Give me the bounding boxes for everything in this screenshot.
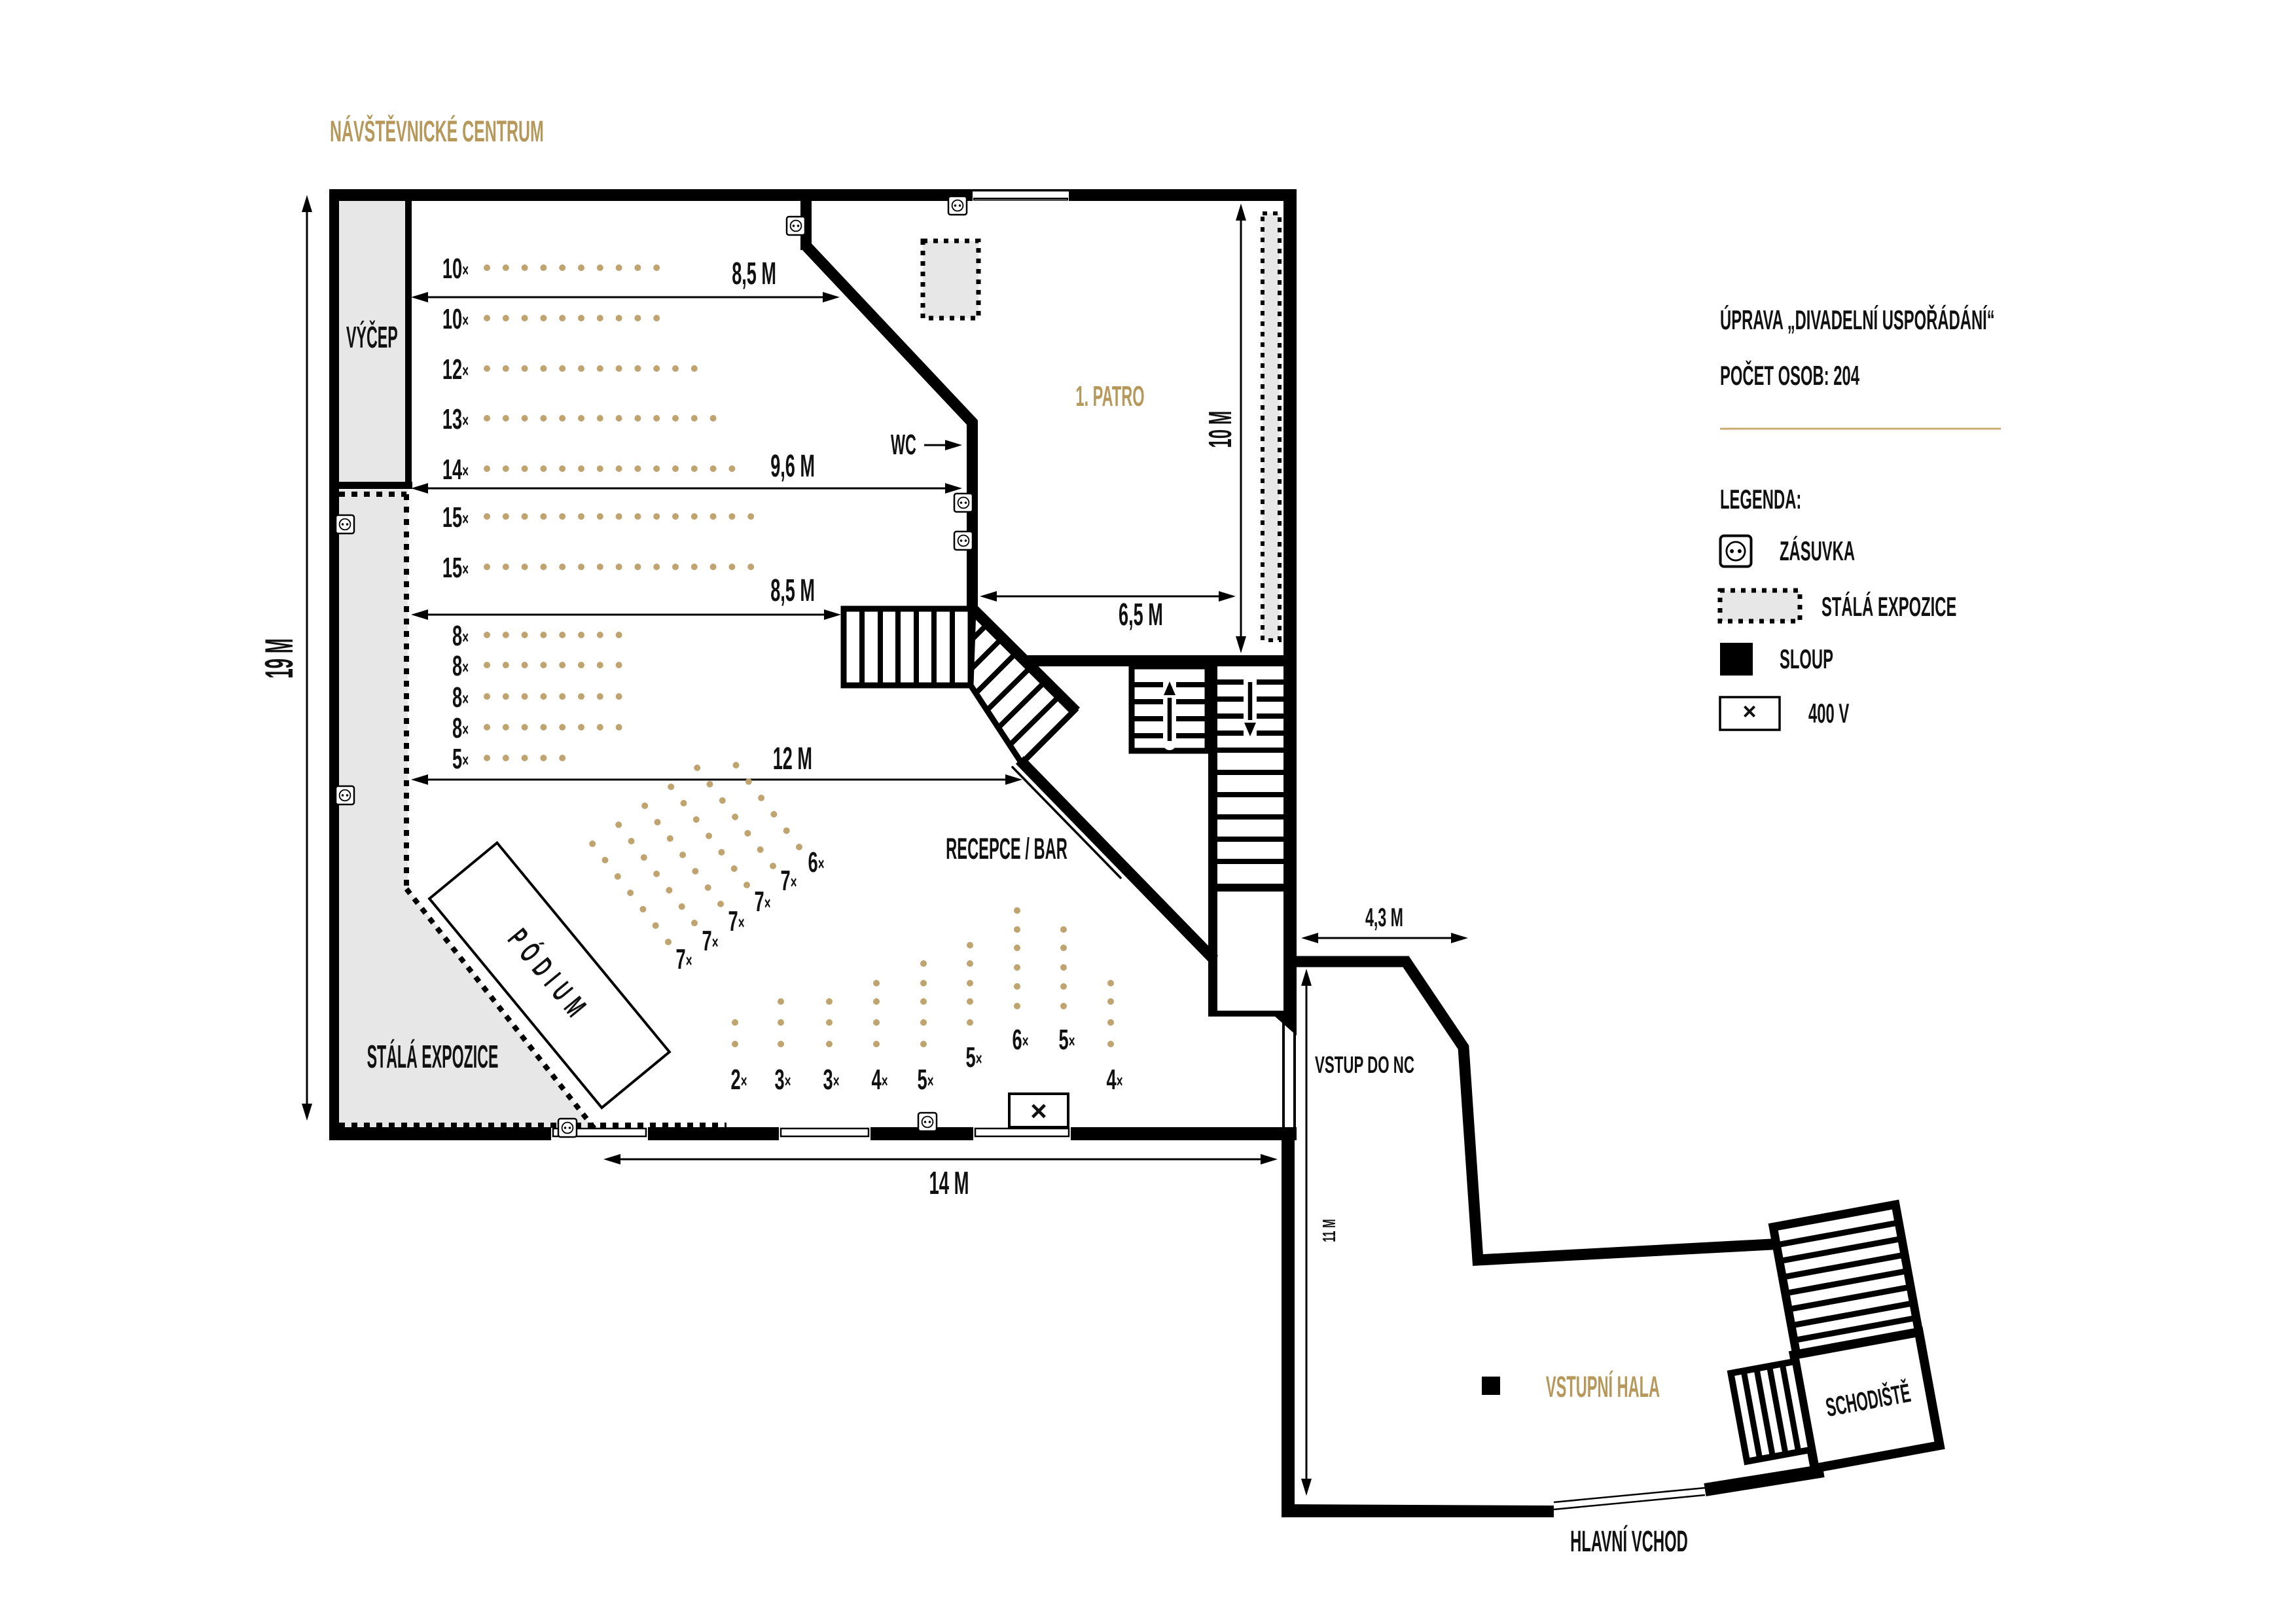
svg-text:8,5 M: 8,5 M bbox=[732, 257, 776, 291]
svg-text:14 M: 14 M bbox=[929, 1166, 969, 1201]
svg-text:WC: WC bbox=[891, 429, 916, 461]
svg-text:NÁVŠTĚVNICKÉ CENTRUM: NÁVŠTĚVNICKÉ CENTRUM bbox=[330, 114, 544, 148]
svg-text:ZÁSUVKA: ZÁSUVKA bbox=[1780, 536, 1855, 567]
svg-text:4,3 M: 4,3 M bbox=[1365, 902, 1403, 931]
svg-text:HLAVNÍ VCHOD: HLAVNÍ VCHOD bbox=[1570, 1525, 1688, 1558]
svg-text:VSTUP DO NC: VSTUP DO NC bbox=[1315, 1053, 1414, 1079]
svg-text:400 V: 400 V bbox=[1808, 698, 1849, 729]
svg-text:×: × bbox=[1030, 1095, 1047, 1127]
svg-text:LEGENDA:: LEGENDA: bbox=[1720, 484, 1801, 515]
svg-text:11 M: 11 M bbox=[1318, 1219, 1339, 1242]
svg-text:6,5 M: 6,5 M bbox=[1119, 598, 1163, 632]
svg-text:×: × bbox=[1742, 698, 1756, 725]
svg-text:VSTUPNÍ HALA: VSTUPNÍ HALA bbox=[1546, 1370, 1660, 1403]
svg-text:POČET OSOB: 204: POČET OSOB: 204 bbox=[1720, 360, 1859, 391]
svg-text:VÝČEP: VÝČEP bbox=[346, 319, 398, 354]
svg-text:12 M: 12 M bbox=[773, 742, 812, 776]
svg-text:RECEPCE / BAR: RECEPCE / BAR bbox=[946, 832, 1067, 865]
svg-text:ÚPRAVA „DIVADELNÍ USPOŘÁDÁNÍ“: ÚPRAVA „DIVADELNÍ USPOŘÁDÁNÍ“ bbox=[1720, 305, 1995, 336]
svg-text:9,6 M: 9,6 M bbox=[770, 449, 815, 484]
svg-text:STÁLÁ EXPOZICE: STÁLÁ EXPOZICE bbox=[367, 1038, 499, 1075]
svg-text:19 M: 19 M bbox=[257, 638, 301, 678]
svg-text:8,5 M: 8,5 M bbox=[770, 573, 815, 608]
svg-text:SLOUP: SLOUP bbox=[1780, 644, 1833, 675]
svg-text:STÁLÁ EXPOZICE: STÁLÁ EXPOZICE bbox=[1821, 592, 1956, 623]
svg-text:1. PATRO: 1. PATRO bbox=[1075, 380, 1144, 412]
svg-text:10 M: 10 M bbox=[1203, 411, 1238, 448]
